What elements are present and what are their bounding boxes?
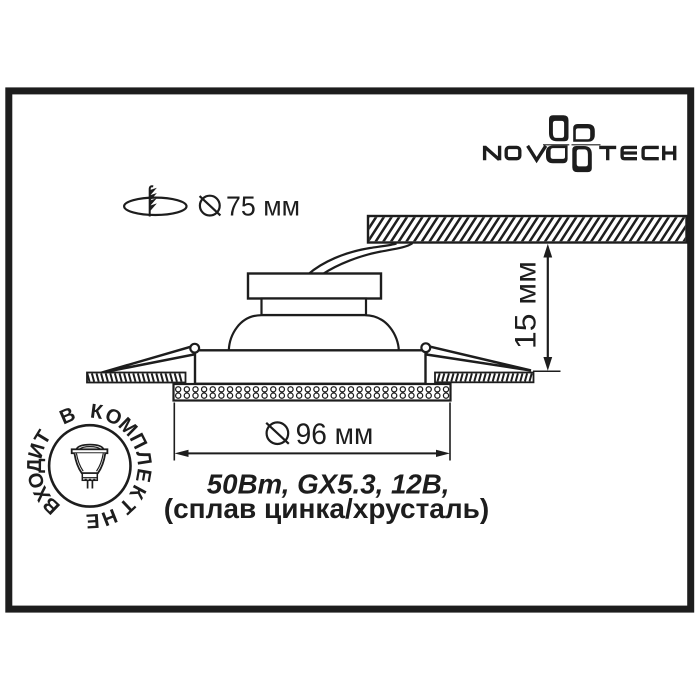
svg-text:96 мм: 96 мм (296, 418, 374, 451)
svg-text:(сплав цинка/хрусталь): (сплав цинка/хрусталь) (164, 493, 490, 524)
svg-text:75 мм: 75 мм (226, 191, 300, 222)
svg-text:15 мм: 15 мм (510, 261, 543, 349)
svg-text:Е: Е (85, 509, 100, 532)
